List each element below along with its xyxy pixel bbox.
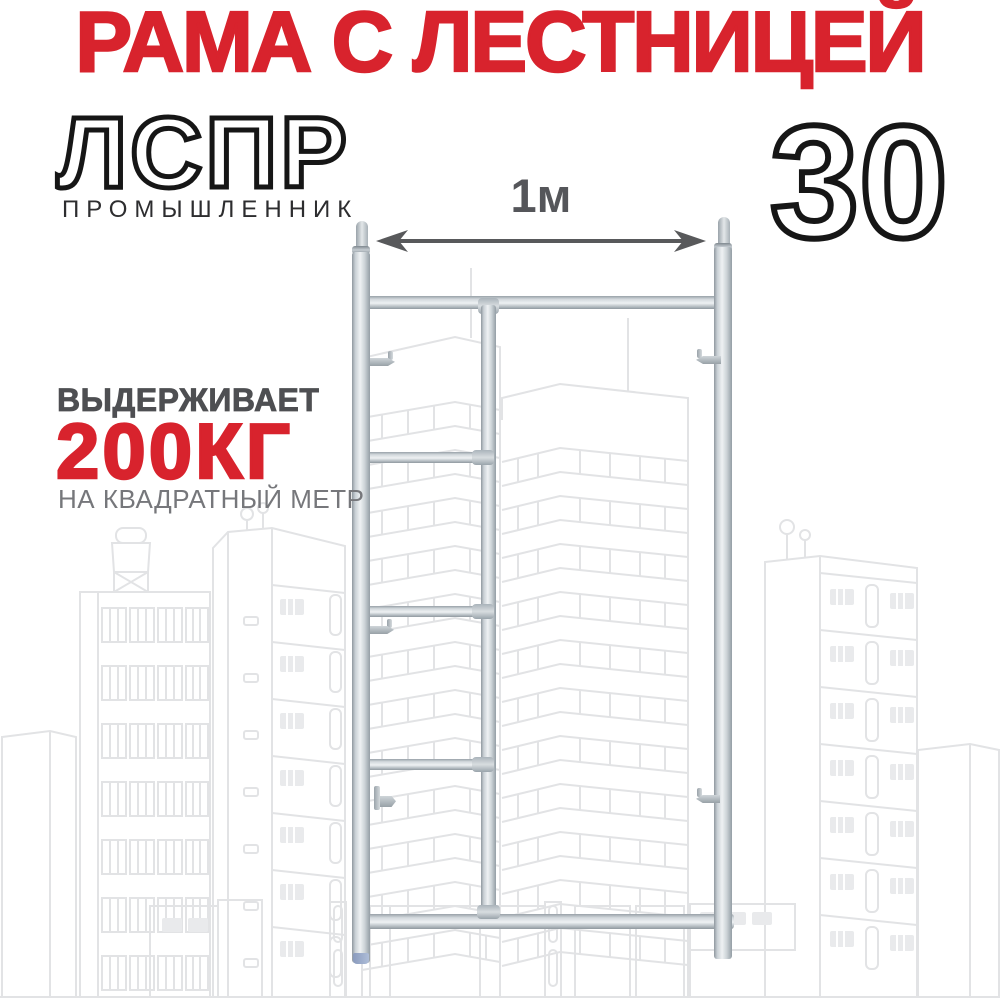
frame-top-crossbar — [354, 296, 732, 309]
rung-3-joint — [472, 757, 494, 772]
stringer-bottom-joint — [477, 905, 500, 919]
ladder-rung-1 — [366, 452, 484, 463]
ladder-rung-2 — [366, 606, 484, 617]
right-hook-lower-pin — [697, 788, 702, 797]
model-name: ЛСПР — [57, 103, 350, 203]
building-panel-tower — [213, 503, 345, 997]
building-right-tower — [765, 520, 917, 997]
building-far-right — [918, 744, 999, 997]
city-line-art — [0, 268, 1000, 997]
building-mid-right-tower — [502, 318, 688, 997]
brand-name: ПРОМЫШЛЕННИК — [62, 198, 358, 222]
left-post-foot-cap — [353, 953, 369, 964]
building-far-left — [2, 731, 76, 997]
rung-1-joint — [472, 450, 494, 465]
ladder-rung-3 — [366, 759, 484, 770]
frame-bottom-crossbar — [352, 914, 734, 929]
load-capacity-unit: НА КВАДРАТНЫЙ МЕТР — [58, 486, 365, 512]
left-flag-lock-pin — [374, 786, 380, 810]
product-banner: РАМА С ЛЕСТНИЦЕЙ ЛСПР ПРОМЫШЛЕННИК 30 1м… — [0, 0, 1000, 1000]
rung-2-joint — [472, 604, 494, 619]
load-capacity-value: 200КГ — [56, 412, 293, 490]
frame-right-post — [714, 247, 732, 959]
right-hook-upper-pin — [697, 349, 702, 358]
width-dimension-label: 1м — [376, 172, 706, 219]
product-title: РАМА С ЛЕСТНИЦЕЙ — [0, 0, 1000, 85]
width-dimension-arrow — [374, 226, 708, 256]
size-number: 30 — [770, 102, 948, 262]
frame-left-post — [352, 252, 370, 963]
